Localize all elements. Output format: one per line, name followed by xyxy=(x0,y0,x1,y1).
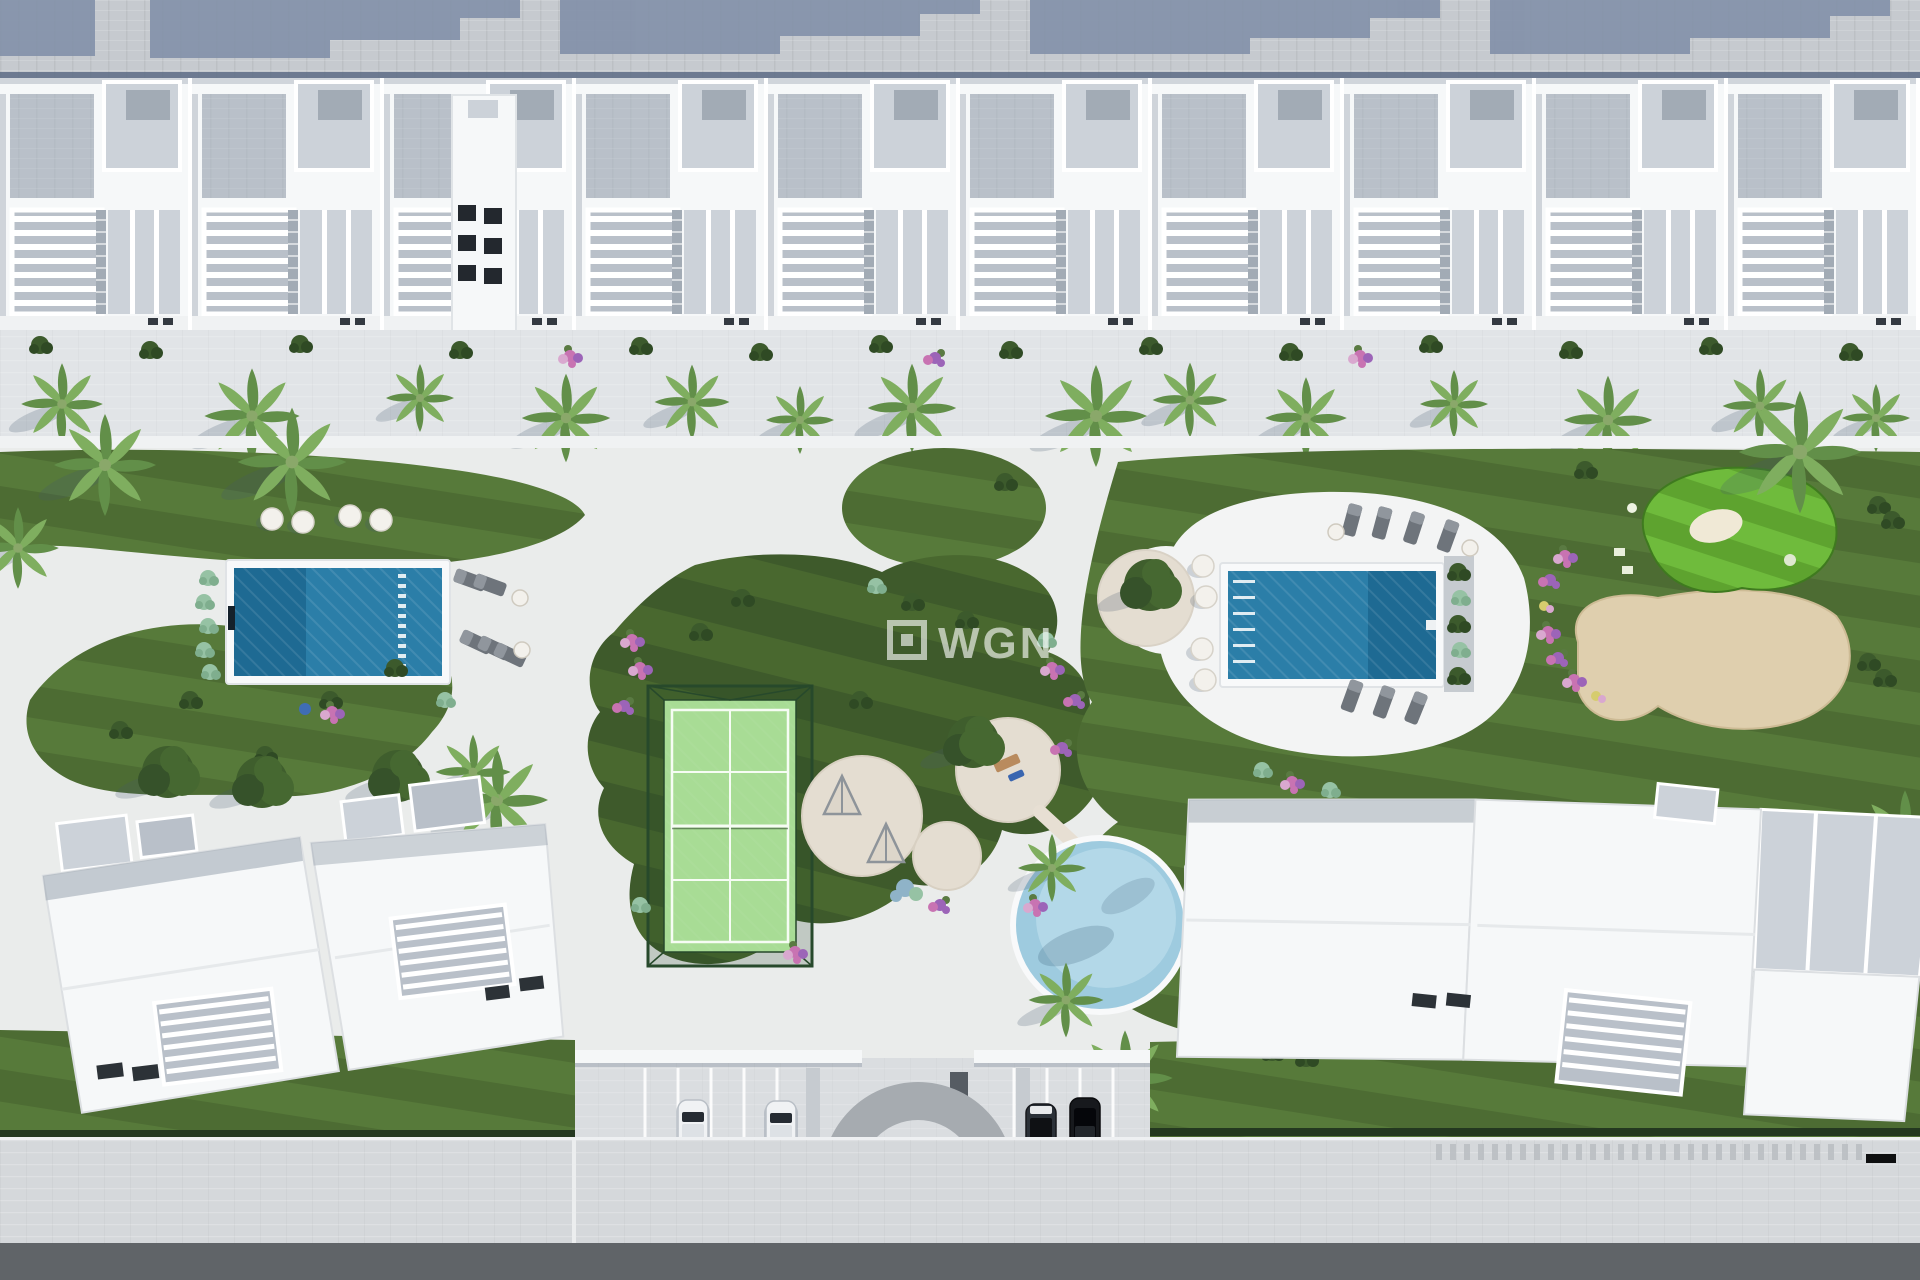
hedge-right xyxy=(1150,1128,1920,1136)
side-table xyxy=(512,590,528,606)
hedge-left xyxy=(0,1130,575,1138)
townhouse-unit xyxy=(1344,78,1536,330)
roof-pergola-grid xyxy=(154,989,281,1085)
townhouse-unit xyxy=(1536,78,1728,330)
pool-skimmer xyxy=(1426,620,1436,630)
curb-joint xyxy=(572,1140,576,1243)
side-table xyxy=(1328,524,1344,540)
side-table xyxy=(1462,540,1478,556)
roof-pergola-grid xyxy=(391,905,515,998)
pool-step-bench xyxy=(228,606,235,630)
kids-round-pool xyxy=(1010,835,1190,1015)
townhouse-unit xyxy=(1152,78,1344,330)
main-pool-left xyxy=(195,560,450,684)
main-pool-right xyxy=(1220,556,1474,692)
top-townhouse-row xyxy=(0,78,1920,330)
blue-ball xyxy=(299,703,311,715)
tall-corner-building xyxy=(452,95,516,367)
golf-detail xyxy=(1627,503,1637,513)
roof-pergola-grid xyxy=(1556,990,1690,1095)
top-road xyxy=(0,0,1920,83)
padel-court xyxy=(648,686,812,966)
street-band xyxy=(0,1128,1920,1280)
watermark-text: WGN xyxy=(938,619,1055,668)
aerial-render-of-residential-complex: WGN xyxy=(0,0,1920,1280)
sand-area xyxy=(1576,590,1850,729)
townhouse-unit xyxy=(1728,78,1920,330)
putting-mat xyxy=(1614,548,1625,556)
entrance-wall-left xyxy=(575,1050,862,1063)
asphalt-road xyxy=(0,1243,1920,1280)
drain-grate xyxy=(1866,1154,1896,1163)
townhouse-unit xyxy=(0,78,192,330)
side-table xyxy=(514,642,530,658)
townhouse-unit xyxy=(768,78,960,330)
entrance-wall-right xyxy=(974,1050,1150,1063)
townhouse-unit xyxy=(192,78,384,330)
townhouse-unit xyxy=(576,78,768,330)
lawn-center-circle xyxy=(842,448,1046,568)
putting-mat xyxy=(1622,566,1633,574)
townhouse-unit xyxy=(960,78,1152,330)
perimeter-fence xyxy=(0,72,1920,79)
golf-detail xyxy=(1784,554,1796,566)
